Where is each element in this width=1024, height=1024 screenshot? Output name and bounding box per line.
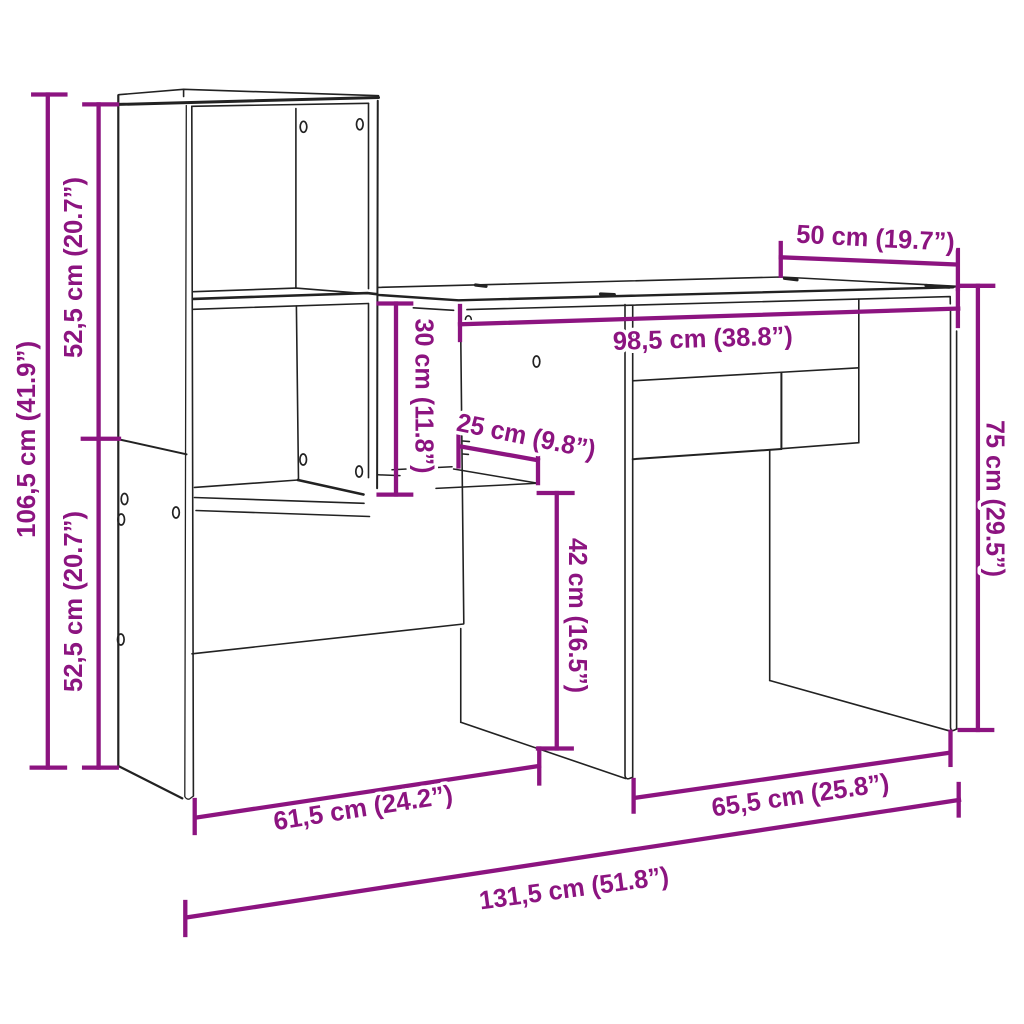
svg-text:98,5 cm (38.8”): 98,5 cm (38.8”): [612, 320, 793, 356]
svg-text:106,5 cm (41.9”): 106,5 cm (41.9”): [11, 341, 41, 538]
svg-text:42 cm (16.5”): 42 cm (16.5”): [563, 538, 593, 693]
svg-text:52,5 cm (20.7”): 52,5 cm (20.7”): [58, 511, 88, 692]
svg-text:52,5 cm (20.7”): 52,5 cm (20.7”): [58, 177, 88, 358]
svg-text:75 cm (29.5”): 75 cm (29.5”): [981, 420, 1011, 577]
svg-text:30 cm (11.8”): 30 cm (11.8”): [409, 319, 439, 474]
